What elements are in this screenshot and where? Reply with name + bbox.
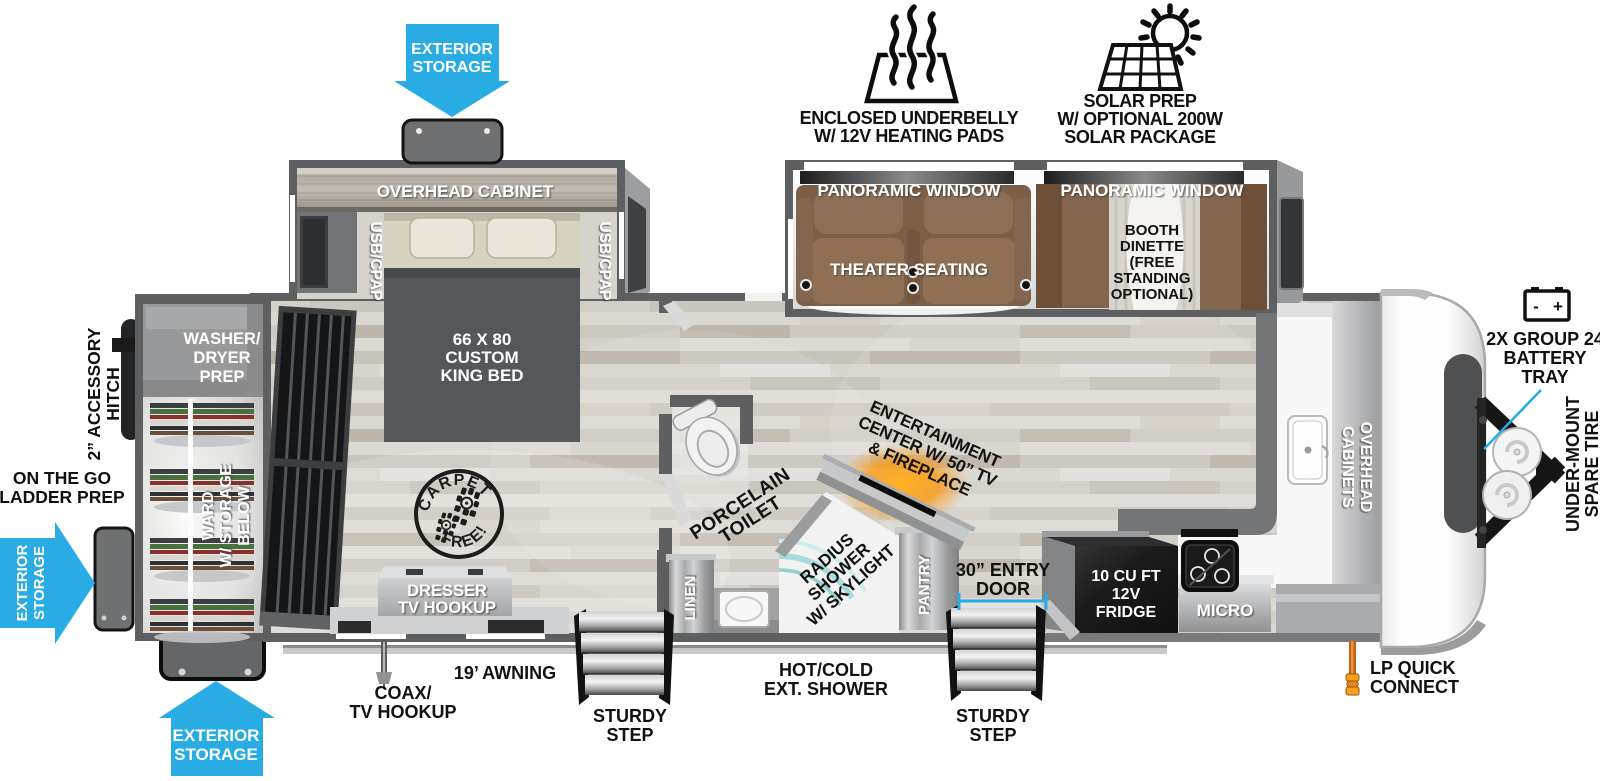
svg-text:PANORAMIC WINDOW: PANORAMIC WINDOW (818, 181, 1002, 200)
svg-text:OVERHEAD: OVERHEAD (1357, 422, 1374, 513)
svg-text:BELOW: BELOW (236, 485, 253, 545)
svg-text:STEP: STEP (606, 725, 653, 745)
svg-text:10 CU FT: 10 CU FT (1091, 568, 1161, 585)
svg-text:W/ OPTIONAL 200W: W/ OPTIONAL 200W (1057, 109, 1223, 129)
svg-text:TRAY: TRAY (1521, 367, 1568, 387)
svg-text:THEATER SEATING: THEATER SEATING (830, 260, 988, 279)
svg-text:BATTERY: BATTERY (1504, 348, 1587, 368)
svg-text:COAX/: COAX/ (374, 683, 431, 703)
svg-text:66 X 80: 66 X 80 (453, 330, 512, 349)
svg-text:STORAGE: STORAGE (31, 546, 48, 620)
svg-text:SOLAR PACKAGE: SOLAR PACKAGE (1064, 127, 1216, 147)
svg-text:PANTRY: PANTRY (916, 555, 933, 615)
svg-text:2” ACCESSORY: 2” ACCESSORY (84, 327, 104, 460)
svg-text:EXTERIOR: EXTERIOR (14, 544, 31, 621)
svg-text:CABINETS: CABINETS (1339, 426, 1356, 508)
svg-text:USB/CPAP: USB/CPAP (596, 222, 613, 301)
svg-text:OVERHEAD CABINET: OVERHEAD CABINET (377, 182, 554, 201)
svg-text:EXTERIOR: EXTERIOR (411, 41, 493, 58)
svg-text:30” ENTRY: 30” ENTRY (956, 560, 1050, 580)
svg-text:12V: 12V (1112, 586, 1141, 603)
svg-text:19’ AWNING: 19’ AWNING (454, 663, 556, 683)
svg-text:CUSTOM: CUSTOM (445, 348, 518, 367)
svg-text:PANORAMIC WINDOW: PANORAMIC WINDOW (1061, 181, 1245, 200)
svg-text:WASHER/: WASHER/ (183, 330, 260, 348)
svg-text:2X GROUP 24: 2X GROUP 24 (1486, 329, 1600, 349)
svg-text:TV HOOKUP: TV HOOKUP (398, 599, 496, 617)
svg-text:DRESSER: DRESSER (407, 582, 487, 600)
svg-text:(FREE: (FREE (1130, 254, 1175, 271)
svg-text:STANDING: STANDING (1113, 270, 1190, 287)
svg-text:ENCLOSED UNDERBELLY: ENCLOSED UNDERBELLY (800, 108, 1019, 128)
svg-text:PREP: PREP (200, 368, 245, 386)
svg-text:STURDY: STURDY (593, 706, 667, 726)
svg-text:DINETTE: DINETTE (1120, 238, 1184, 255)
svg-text:LADDER PREP: LADDER PREP (0, 487, 125, 507)
svg-text:UNDER-MOUNT: UNDER-MOUNT (1563, 396, 1583, 532)
svg-text:ON THE GO: ON THE GO (13, 468, 111, 488)
svg-text:STORAGE: STORAGE (174, 745, 258, 764)
svg-text:LINEN: LINEN (682, 576, 699, 621)
svg-text:EXTERIOR: EXTERIOR (173, 726, 260, 745)
svg-text:STORAGE: STORAGE (413, 59, 492, 76)
svg-text:W/ STORAGE: W/ STORAGE (218, 464, 235, 567)
svg-text:USB/CPAP: USB/CPAP (367, 222, 384, 301)
svg-text:EXT. SHOWER: EXT. SHOWER (764, 679, 888, 699)
svg-text:HITCH: HITCH (103, 367, 123, 420)
svg-text:DOOR: DOOR (976, 579, 1030, 599)
svg-text:MICRO: MICRO (1197, 601, 1254, 620)
svg-text:TV HOOKUP: TV HOOKUP (349, 702, 456, 722)
svg-text:LP QUICK: LP QUICK (1370, 658, 1456, 678)
svg-text:FRIDGE: FRIDGE (1096, 604, 1157, 621)
svg-text:SOLAR PREP: SOLAR PREP (1083, 91, 1196, 111)
svg-text:KING BED: KING BED (440, 366, 523, 385)
svg-text:W/ 12V HEATING PADS: W/ 12V HEATING PADS (814, 126, 1004, 146)
svg-text:OPTIONAL): OPTIONAL) (1111, 286, 1194, 303)
svg-text:SPARE TIRE: SPARE TIRE (1582, 411, 1600, 518)
svg-text:STURDY: STURDY (956, 706, 1030, 726)
svg-text:BOOTH: BOOTH (1125, 222, 1179, 239)
svg-text:STEP: STEP (969, 725, 1016, 745)
svg-text:+: + (1553, 297, 1563, 316)
svg-text:DRYER: DRYER (193, 349, 250, 367)
svg-text:WARD: WARD (200, 492, 217, 541)
svg-text:HOT/COLD: HOT/COLD (779, 660, 873, 680)
svg-text:CONNECT: CONNECT (1370, 677, 1459, 697)
svg-text:-: - (1533, 297, 1539, 316)
